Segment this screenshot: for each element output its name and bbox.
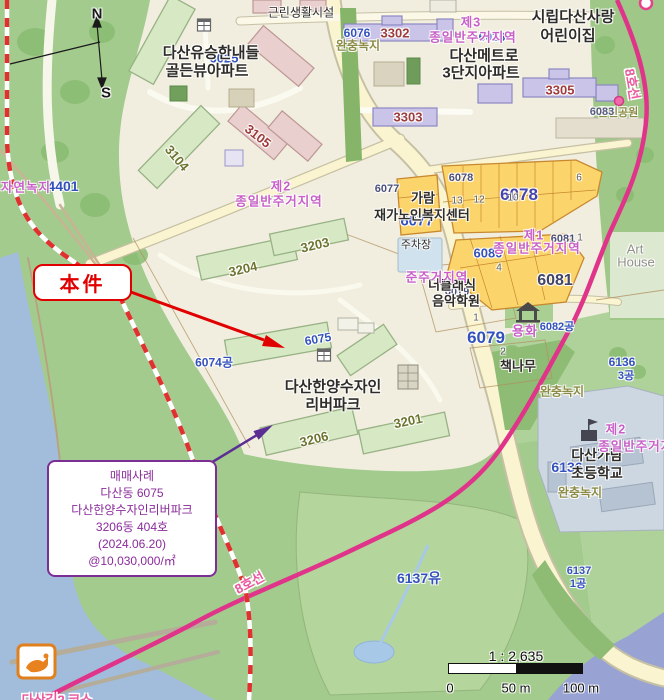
zone-3-body: 종일반주거지역 — [429, 27, 517, 46]
parcel-6074: 6074공 — [195, 354, 233, 371]
zone-2-body: 종일반주거지역 — [235, 191, 323, 210]
sale-line-4: 3206동 404호 — [96, 519, 168, 535]
label-tree: 책나무 — [500, 356, 536, 375]
sale-annotation-box: 매매사례 다산동 6075 다산한양수자인리버파크 3206동 404호 (20… — [47, 460, 217, 577]
parcel-6137yu: 6137유 — [397, 568, 441, 588]
label-art-house-2: House — [617, 255, 655, 270]
label-neighborhood-facility: 근린생활시설 — [268, 4, 334, 21]
label-parking: 주차장 — [401, 236, 431, 252]
white-building-b — [358, 323, 374, 333]
parcel-6078-small: 6078 — [449, 172, 473, 184]
gray-building-2 — [556, 118, 644, 138]
green-utility-1 — [407, 58, 420, 84]
apartment-icon — [198, 19, 211, 31]
label-center-2: 재가노인복지센터 — [374, 205, 470, 224]
compass-north: N — [92, 6, 103, 23]
pond — [354, 641, 394, 663]
scale-bar-white — [449, 664, 516, 673]
label-apt1-name-2: 골든뷰아파트 — [166, 60, 249, 81]
parcel-6083: 6083 — [590, 106, 614, 118]
building-3305: 3305 — [546, 83, 575, 98]
parcel-6076: 6076 — [344, 26, 371, 40]
white-building-a — [338, 318, 358, 330]
label-yonghwa: 용화 — [512, 321, 538, 340]
label-metro-apt-2: 3단지아파트 — [442, 62, 519, 83]
apartment-icon-2 — [318, 349, 331, 361]
map-viewport: 근린생활시설 6025 다산유승한내들 골든뷰아파트 다산메트로 3단지아파트 … — [0, 0, 664, 700]
parcel-4401: 4401 — [47, 178, 78, 194]
scale-zero: 0 — [446, 681, 453, 696]
sale-line-6: @10,030,000/㎡ — [88, 553, 176, 569]
lot-4: 4 — [496, 263, 502, 274]
hatched-building — [398, 365, 418, 389]
label-buffer-right: 완충녹지 — [540, 383, 584, 400]
compass-south: S — [101, 85, 111, 102]
scale-end: 100 m — [563, 681, 599, 696]
lot-1b: 1 — [473, 313, 479, 324]
scale-ratio: 1 : 2,635 — [489, 648, 544, 664]
parcel-6081: 6081 — [537, 272, 573, 290]
zone-1-body: 종일반주거지역 — [493, 238, 581, 257]
label-daycare-1: 시립다산사랑 — [532, 6, 615, 27]
scale-bar — [448, 663, 583, 674]
bird-icon — [18, 645, 55, 678]
scale-bar-black — [516, 664, 583, 673]
label-school-2: 초등학교 — [571, 463, 623, 483]
sale-line-5: (2024.06.20) — [98, 536, 166, 552]
building-3302: 3302 — [381, 26, 410, 41]
subject-annotation-label: 本件 — [60, 268, 106, 297]
green-utility-2 — [170, 86, 187, 101]
lot-10: 10 — [507, 193, 518, 204]
label-daycare-2: 어린이집 — [540, 25, 595, 46]
parcel-6077-small: 6077 — [375, 183, 399, 195]
station-icon-top — [640, 0, 652, 9]
zone-semi-res: 준주거지역 — [406, 267, 469, 286]
white-building-top — [430, 0, 456, 12]
zone-2b-body: 종일반주거지역 — [598, 436, 664, 455]
label-apt2-name-2: 리버파크 — [305, 394, 360, 415]
lot-6: 6 — [576, 173, 582, 184]
zone-nature-green: 자연녹지 — [1, 177, 51, 196]
gray-building-1 — [374, 62, 404, 86]
label-academy-2: 음악학원 — [432, 291, 480, 310]
sale-line-1: 매매사례 — [110, 468, 154, 484]
parcel-6136-right-suffix: 3공 — [618, 367, 634, 383]
small-building — [225, 150, 243, 166]
bike-course-label: 다산길2 코스 — [22, 690, 93, 700]
parcel-6137-suffix: 1공 — [570, 575, 586, 591]
sale-line-3: 다산한양수자인리버파크 — [71, 502, 192, 518]
subject-annotation-box: 本件 — [33, 264, 132, 301]
parcel-6078: 6078 — [500, 185, 538, 205]
lot-12: 12 — [473, 195, 484, 206]
label-buffer-bottom: 완충녹지 — [558, 484, 602, 501]
parcel-6079: 6079 — [467, 328, 505, 348]
parcel-6082: 6082공 — [540, 318, 575, 334]
tan-building — [229, 89, 254, 107]
sale-line-2: 다산동 6075 — [100, 485, 163, 501]
scale-mid: 50 m — [502, 681, 531, 696]
map-canvas[interactable] — [0, 0, 664, 700]
building-3303: 3303 — [394, 110, 423, 125]
